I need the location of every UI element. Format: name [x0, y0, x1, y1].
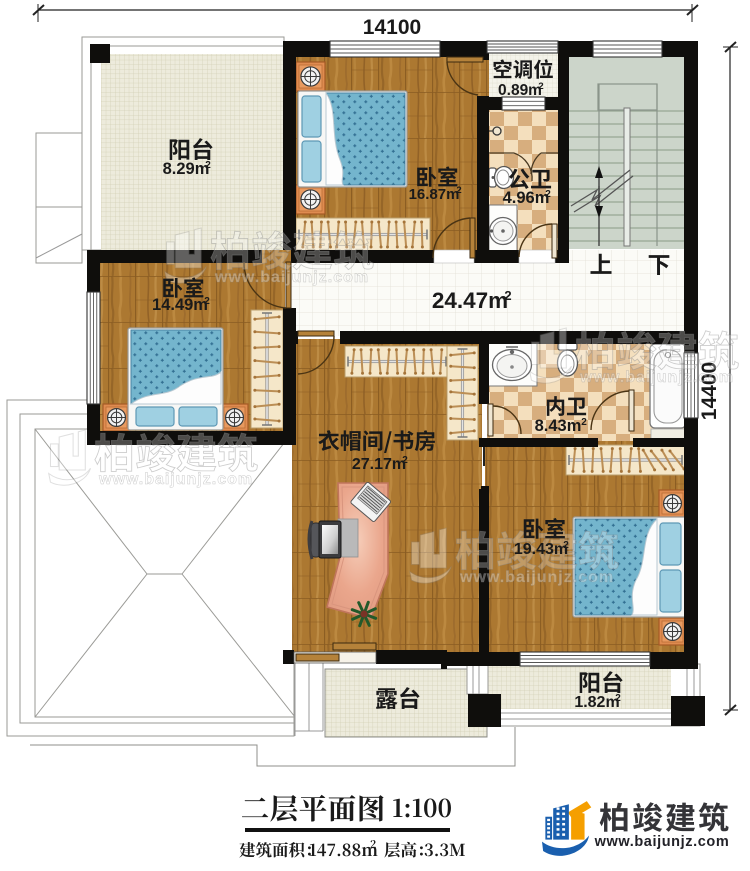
- svg-text:14.49m: 14.49m: [152, 296, 208, 314]
- svg-text:14100: 14100: [363, 16, 421, 39]
- svg-text:0.89m: 0.89m: [498, 82, 542, 99]
- svg-text:2: 2: [563, 540, 569, 551]
- svg-text:www.baijunjz.com: www.baijunjz.com: [594, 834, 730, 850]
- svg-text:www.baijunjz.com: www.baijunjz.com: [214, 269, 369, 286]
- svg-text:2: 2: [538, 81, 543, 92]
- svg-text:19.43m: 19.43m: [514, 541, 568, 558]
- svg-text:2: 2: [581, 417, 587, 428]
- svg-text:2: 2: [402, 455, 408, 466]
- svg-text:www.baijunjz.com: www.baijunjz.com: [579, 369, 734, 386]
- svg-text:2: 2: [545, 189, 551, 200]
- svg-text:2: 2: [204, 296, 210, 307]
- svg-text:4.96m: 4.96m: [503, 189, 550, 207]
- svg-text:www.baijunjz.com: www.baijunjz.com: [98, 471, 253, 488]
- svg-text:2: 2: [205, 160, 211, 171]
- svg-text:2: 2: [456, 185, 461, 196]
- svg-text:8.43m: 8.43m: [535, 417, 582, 435]
- svg-text:8.29m: 8.29m: [163, 160, 210, 178]
- svg-text:24.47m: 24.47m: [432, 288, 508, 313]
- svg-text:2: 2: [504, 288, 511, 303]
- svg-text:2: 2: [615, 693, 621, 704]
- svg-text:www.baijunjz.com: www.baijunjz.com: [459, 569, 614, 586]
- svg-text:27.17m: 27.17m: [352, 456, 406, 473]
- svg-text:1.82m: 1.82m: [574, 694, 619, 711]
- svg-text:16.87m: 16.87m: [409, 186, 460, 203]
